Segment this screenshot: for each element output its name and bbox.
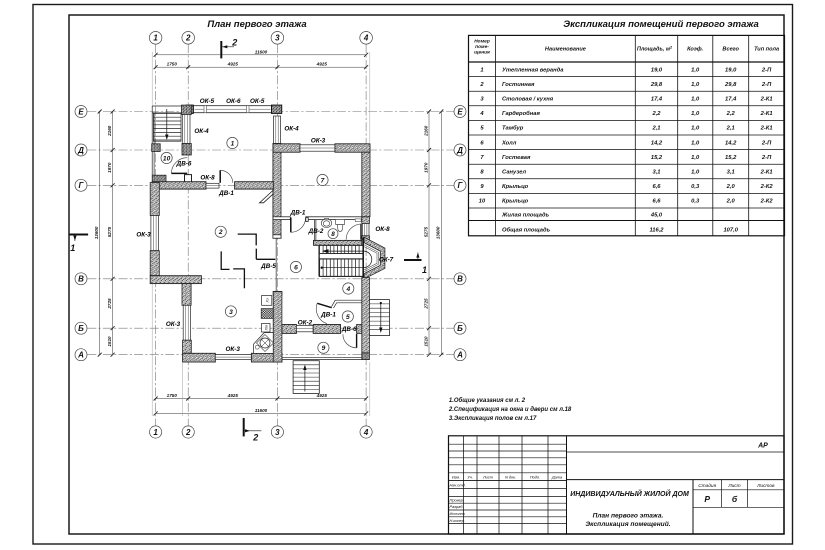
svg-text:29,8: 29,8: [650, 82, 663, 88]
svg-text:1,0: 1,0: [691, 126, 700, 132]
svg-text:Коэф.: Коэф.: [687, 46, 704, 53]
svg-text:2: 2: [218, 229, 223, 236]
svg-text:Провер.: Провер.: [450, 497, 465, 502]
svg-text:В: В: [457, 275, 463, 284]
svg-text:ОК-8: ОК-8: [200, 175, 215, 182]
svg-text:План первого этажа: План первого этажа: [207, 19, 306, 30]
svg-text:3.Экспликация полов см л.17: 3.Экспликация полов см л.17: [449, 416, 537, 422]
svg-text:1970: 1970: [423, 162, 428, 173]
svg-text:9: 9: [322, 345, 326, 352]
svg-text:Д: Д: [77, 146, 84, 155]
svg-text:10: 10: [479, 199, 486, 205]
svg-text:4: 4: [363, 428, 369, 437]
svg-text:1,0: 1,0: [691, 97, 700, 103]
svg-text:2,0: 2,0: [726, 184, 736, 190]
svg-text:1750: 1750: [167, 62, 178, 67]
svg-text:8: 8: [331, 231, 335, 238]
svg-text:2: 2: [185, 34, 191, 43]
svg-text:4925: 4925: [316, 62, 328, 67]
svg-text:2,0: 2,0: [726, 199, 736, 205]
svg-text:2725: 2725: [423, 298, 428, 310]
svg-text:2,2: 2,2: [726, 111, 736, 117]
svg-text:2-К1: 2-К1: [760, 111, 773, 117]
svg-text:15,2: 15,2: [651, 155, 663, 161]
svg-text:Наименование: Наименование: [545, 47, 586, 53]
svg-text:1510: 1510: [107, 336, 112, 347]
svg-text:19,0: 19,0: [725, 67, 737, 73]
svg-text:5275: 5275: [107, 226, 112, 237]
svg-text:Лист: Лист: [727, 483, 740, 489]
svg-text:19,0: 19,0: [651, 67, 663, 73]
svg-text:ДВ-6: ДВ-6: [176, 161, 192, 168]
svg-text:14,2: 14,2: [725, 140, 737, 146]
svg-text:ОК-4: ОК-4: [284, 126, 299, 133]
svg-text:4925: 4925: [227, 393, 239, 398]
svg-text:116,2: 116,2: [649, 227, 664, 233]
svg-text:2-К1: 2-К1: [760, 126, 773, 132]
svg-text:17,4: 17,4: [651, 97, 663, 103]
svg-text:17,4: 17,4: [725, 97, 737, 103]
svg-text:Д: Д: [456, 146, 463, 155]
svg-text:Уч.: Уч.: [467, 474, 473, 479]
svg-text:Листов: Листов: [756, 483, 775, 489]
svg-text:11600: 11600: [255, 49, 268, 54]
svg-text:Разраб.: Разраб.: [450, 504, 464, 509]
svg-text:3: 3: [275, 34, 280, 43]
svg-text:Крыльцо: Крыльцо: [502, 199, 529, 205]
svg-text:Крыльцо: Крыльцо: [502, 184, 529, 190]
svg-text:2: 2: [231, 38, 237, 48]
svg-text:ДВ-1: ДВ-1: [320, 311, 336, 318]
svg-text:6: 6: [294, 264, 298, 271]
svg-text:Р: Р: [704, 494, 710, 504]
svg-text:Лист: Лист: [482, 474, 494, 479]
svg-text:Санузел: Санузел: [502, 170, 527, 176]
svg-text:11600: 11600: [255, 408, 268, 413]
svg-text:ИНДИВИДУАЛЬНЫЙ ЖИЛОЙ ДОМ: ИНДИВИДУАЛЬНЫЙ ЖИЛОЙ ДОМ: [570, 489, 689, 498]
svg-text:Б: Б: [457, 324, 463, 333]
svg-text:б: б: [732, 494, 738, 504]
svg-text:2.Спецификация на окна и двери: 2.Спецификация на окна и двери см л.18: [448, 406, 572, 413]
svg-text:Гостевая: Гостевая: [502, 155, 531, 161]
svg-text:2-К2: 2-К2: [760, 199, 774, 205]
svg-text:10: 10: [163, 155, 171, 162]
svg-text:6,6: 6,6: [652, 199, 661, 205]
svg-text:2-П: 2-П: [761, 67, 772, 73]
svg-text:Исполни: Исполни: [450, 511, 466, 516]
svg-text:ДВ-1: ДВ-1: [218, 190, 234, 197]
svg-text:щения: щения: [474, 51, 490, 56]
svg-text:1,0: 1,0: [691, 140, 700, 146]
svg-text:2-К1: 2-К1: [760, 97, 773, 103]
svg-text:Гостинная: Гостинная: [502, 82, 535, 88]
svg-text:Жилая площадь: Жилая площадь: [501, 213, 550, 219]
svg-text:ДВ-1: ДВ-1: [290, 210, 306, 217]
svg-text:Подп.: Подп.: [530, 474, 540, 479]
svg-text:Площадь, м2: Площадь, м2: [637, 46, 673, 53]
svg-text:13600: 13600: [94, 226, 99, 239]
svg-text:2-П: 2-П: [761, 140, 772, 146]
svg-text:Общая площадь: Общая площадь: [502, 226, 551, 233]
svg-text:4925: 4925: [227, 62, 239, 67]
svg-text:Тип пола: Тип пола: [754, 47, 779, 53]
svg-text:1970: 1970: [107, 162, 112, 173]
svg-text:Пм: Пм: [265, 325, 269, 331]
svg-text:Экспликация помещений.: Экспликация помещений.: [585, 520, 670, 528]
svg-text:29,8: 29,8: [724, 82, 737, 88]
svg-text:ДВ-6: ДВ-6: [341, 326, 357, 333]
svg-text:14,2: 14,2: [651, 140, 663, 146]
svg-text:3: 3: [275, 428, 280, 437]
svg-text:2-П: 2-П: [761, 82, 772, 88]
svg-text:Утепленная веранда: Утепленная веранда: [502, 67, 564, 73]
svg-text:Хз: Хз: [265, 298, 269, 304]
svg-text:0,3: 0,3: [691, 184, 700, 190]
svg-text:0,3: 0,3: [691, 199, 700, 205]
svg-text:ОК-5: ОК-5: [250, 98, 265, 105]
svg-text:ОК-6: ОК-6: [226, 98, 241, 105]
svg-text:1: 1: [422, 265, 427, 275]
svg-text:5: 5: [346, 314, 350, 321]
svg-text:1,0: 1,0: [691, 170, 700, 176]
svg-text:ДВ-5: ДВ-5: [260, 263, 276, 270]
svg-text:1: 1: [480, 67, 483, 73]
svg-text:2: 2: [185, 428, 191, 437]
svg-text:Номер: Номер: [474, 39, 490, 45]
svg-text:2,1: 2,1: [726, 126, 735, 132]
svg-text:Тамбур: Тамбур: [502, 125, 524, 132]
svg-text:13600: 13600: [436, 226, 441, 239]
svg-text:ОК-7: ОК-7: [379, 257, 394, 264]
svg-text:1750: 1750: [167, 393, 178, 398]
svg-text:Холл: Холл: [501, 140, 517, 146]
svg-text:Стадия: Стадия: [698, 483, 716, 489]
svg-text:4: 4: [345, 286, 350, 293]
svg-text:АР: АР: [757, 443, 768, 450]
svg-text:4: 4: [363, 34, 369, 43]
svg-text:15,2: 15,2: [725, 155, 737, 161]
svg-text:Изм.: Изм.: [452, 474, 460, 479]
svg-text:7: 7: [321, 177, 325, 184]
svg-text:5275: 5275: [423, 226, 428, 237]
svg-text:ОК-3: ОК-3: [166, 321, 181, 328]
svg-text:2-К1: 2-К1: [760, 170, 773, 176]
svg-text:1,0: 1,0: [691, 155, 700, 161]
svg-text:ОК-5: ОК-5: [200, 98, 215, 105]
svg-text:Е: Е: [78, 107, 84, 116]
svg-text:1.Общие указания см л. 2: 1.Общие указания см л. 2: [449, 397, 526, 404]
svg-text:1: 1: [153, 34, 158, 43]
svg-text:Экспликация помещений первого: Экспликация помещений первого этажа: [563, 19, 759, 30]
svg-text:А: А: [456, 351, 463, 360]
svg-text:2-П: 2-П: [761, 155, 772, 161]
svg-text:В: В: [78, 275, 84, 284]
svg-text:2: 2: [252, 433, 258, 443]
svg-text:ОК-2: ОК-2: [298, 320, 313, 327]
svg-text:ОК-3: ОК-3: [226, 346, 241, 353]
svg-text:ОК-3: ОК-3: [136, 231, 151, 238]
svg-text:Всего: Всего: [722, 47, 739, 53]
svg-text:1,0: 1,0: [691, 67, 700, 73]
svg-text:Н.конер.: Н.конер.: [450, 518, 465, 523]
svg-text:3,1: 3,1: [727, 170, 735, 176]
svg-text:2,2: 2,2: [651, 111, 661, 117]
svg-text:2,1: 2,1: [651, 126, 660, 132]
svg-text:3,1: 3,1: [652, 170, 660, 176]
svg-text:Б: Б: [78, 324, 84, 333]
svg-text:1510: 1510: [423, 336, 428, 347]
svg-text:2-К2: 2-К2: [760, 184, 774, 190]
svg-text:3: 3: [229, 309, 233, 316]
svg-text:Нач.отд.: Нач.отд.: [450, 483, 466, 488]
svg-text:Дата: Дата: [551, 474, 563, 479]
svg-text:1: 1: [70, 243, 75, 253]
svg-text:ОК-8: ОК-8: [375, 226, 390, 233]
svg-text:6,6: 6,6: [652, 184, 661, 190]
svg-text:Е: Е: [457, 107, 463, 116]
svg-text:поме-: поме-: [475, 45, 489, 50]
svg-text:1,0: 1,0: [691, 111, 700, 117]
svg-text:А: А: [77, 351, 84, 360]
svg-text:45,0: 45,0: [650, 213, 663, 219]
svg-text:ОК-3: ОК-3: [311, 138, 326, 145]
svg-text:2725: 2725: [107, 298, 112, 310]
svg-text:107,0: 107,0: [723, 227, 738, 233]
svg-text:1,0: 1,0: [691, 82, 700, 88]
svg-text:ДВ-2: ДВ-2: [308, 228, 324, 235]
svg-text:2160: 2160: [107, 125, 112, 137]
svg-text:2160: 2160: [423, 125, 428, 137]
svg-text:N док.: N док.: [505, 474, 516, 479]
svg-text:ОК-4: ОК-4: [194, 128, 209, 135]
svg-text:Столовая / кухня: Столовая / кухня: [502, 97, 554, 103]
svg-text:1: 1: [231, 140, 235, 147]
svg-text:Гардеробная: Гардеробная: [502, 110, 540, 117]
svg-text:1: 1: [153, 428, 158, 437]
svg-text:План первого этажа.: План первого этажа.: [593, 513, 664, 520]
